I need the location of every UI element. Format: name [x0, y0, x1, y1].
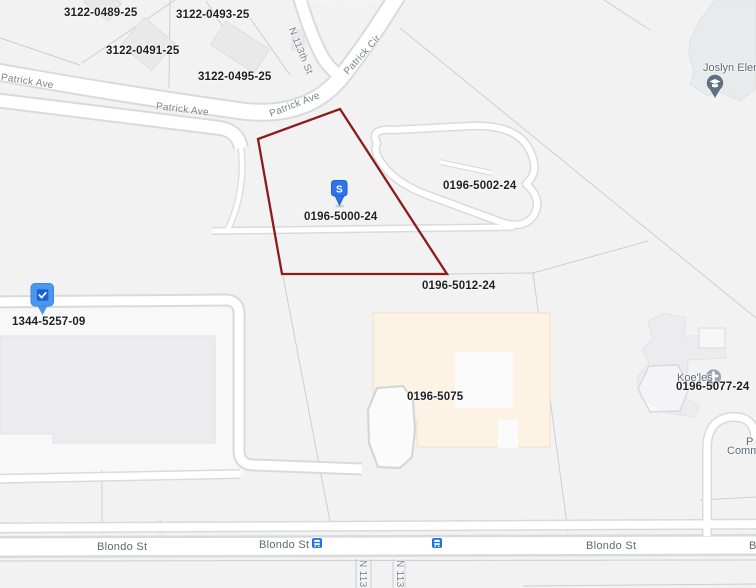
bus-wheel [314, 546, 316, 548]
large-building-left [0, 336, 215, 443]
hexagon-structure [638, 365, 689, 412]
cross-icon-bar [709, 375, 718, 378]
courtyard-notch [498, 420, 518, 448]
bus-stripe [314, 542, 320, 543]
graduation-cap-base [712, 84, 718, 87]
building [292, 30, 304, 50]
bus-wheel [438, 546, 440, 548]
pond-outline [368, 386, 415, 468]
courtyard [455, 352, 513, 408]
bus-wheel [318, 546, 320, 548]
transit-stop-1[interactable] [312, 538, 323, 549]
bus-wheel [434, 546, 436, 548]
transit-stop-2[interactable] [432, 538, 443, 549]
map-graphics: S [0, 0, 756, 588]
subject-marker-letter: S [336, 185, 343, 196]
small-structure [699, 328, 725, 348]
bus-stripe [434, 542, 440, 543]
map-canvas[interactable]: S 3122-0489-25 3122-0493-25 3122-0491- [0, 0, 756, 588]
